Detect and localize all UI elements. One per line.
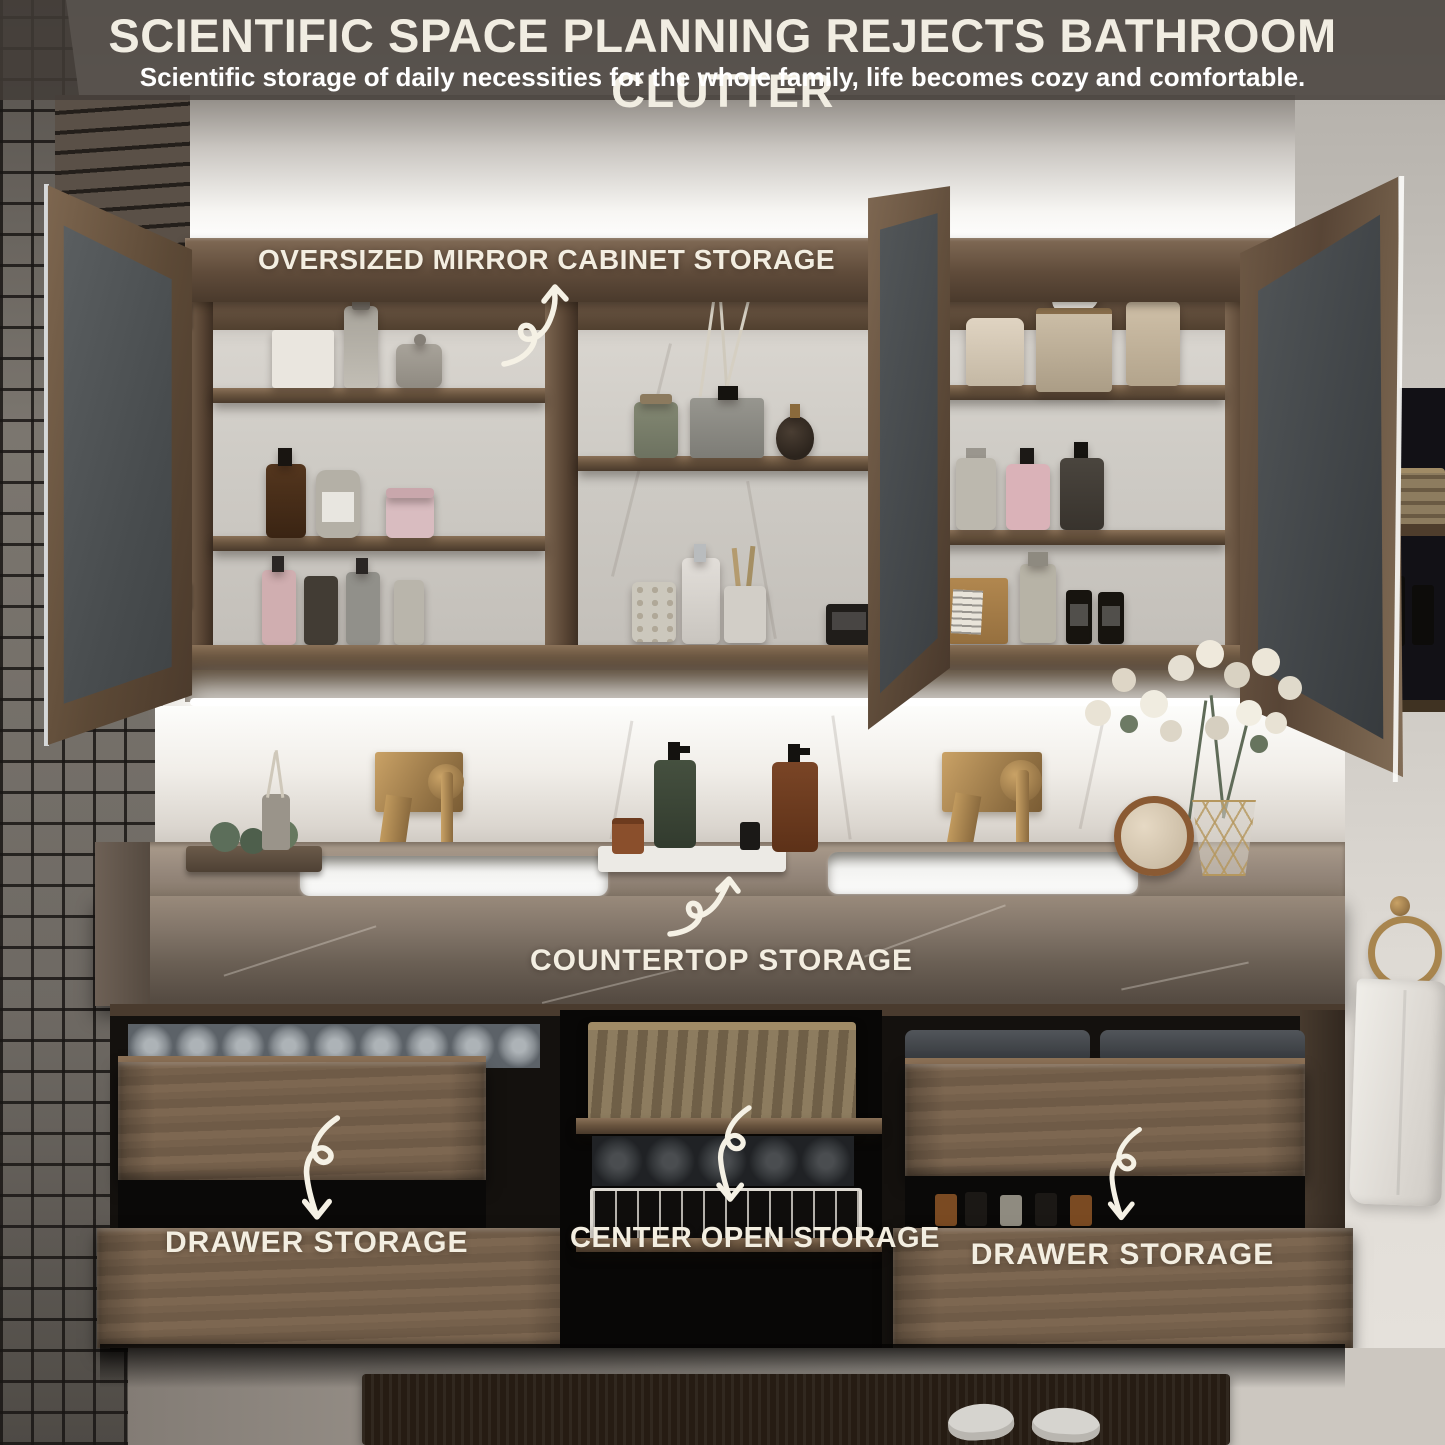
cabinet-shelf: [578, 456, 876, 471]
rose-bloom: [1196, 640, 1224, 668]
glass-jar: [396, 344, 442, 388]
tissue-box: [1036, 308, 1112, 392]
mini-bottle: [965, 1192, 987, 1226]
bath-rug: [362, 1374, 1230, 1445]
callout-label-countertop: COUNTERTOP STORAGE: [530, 944, 865, 978]
rose-bloom: [1278, 676, 1302, 700]
rose-bloom: [1160, 720, 1182, 742]
toiletry-bottle: [394, 580, 424, 645]
mini-bottle: [1035, 1193, 1057, 1226]
soap-dispenser: [1126, 302, 1180, 386]
pump-bottle: [266, 464, 306, 538]
toiletry-bottle: [344, 306, 378, 388]
curly-arrow-down-icon: [1092, 1124, 1156, 1224]
candle: [740, 822, 760, 850]
pump-bottle: [346, 572, 380, 645]
flower-leaf: [1250, 735, 1268, 753]
callout-label-drawer-left: DRAWER STORAGE: [165, 1226, 465, 1260]
header-band: SCIENTIFIC SPACE PLANNING REJECTS BATHRO…: [0, 0, 1445, 100]
diffuser-cap: [718, 386, 738, 400]
toothbrush-cup: [724, 586, 766, 643]
mirror-door-right: [1238, 175, 1405, 785]
canister: [966, 318, 1024, 386]
pump-bottle: [1060, 458, 1104, 530]
cabinet-shelf: [908, 530, 1225, 545]
soap-bottle-brown: [772, 762, 818, 852]
perfume-bottle: [776, 416, 814, 460]
rose-bloom: [1140, 690, 1168, 718]
curly-arrow-down-icon: [284, 1112, 356, 1224]
bottle-label: [1102, 606, 1120, 626]
product-infographic: SCIENTIFIC SPACE PLANNING REJECTS BATHRO…: [0, 0, 1445, 1445]
jar-lid: [640, 394, 672, 404]
soap-dispenser: [682, 558, 720, 644]
mirror-door-middle: [862, 180, 952, 732]
sink-left: [300, 856, 608, 896]
cabinet-shelf: [213, 388, 545, 403]
rose-bloom: [1112, 668, 1136, 692]
pump-spout: [798, 748, 810, 755]
perfume-neck: [790, 404, 800, 418]
jar-label: [832, 612, 866, 630]
niche-bottle: [1412, 585, 1434, 645]
dispenser-pump: [694, 544, 706, 562]
toiletry-bottle: [304, 576, 338, 645]
page-subtitle: Scientific storage of daily necessities …: [0, 62, 1445, 93]
callout-label-drawer-right: DRAWER STORAGE: [970, 1238, 1275, 1272]
pump-top: [356, 558, 368, 574]
pump-bottle: [262, 570, 296, 645]
rose-bloom: [1252, 648, 1280, 676]
soap-bottle-green: [654, 760, 696, 848]
bottle-label: [322, 492, 354, 522]
sink-right: [828, 852, 1138, 894]
flower-leaf: [1120, 715, 1138, 733]
towel-ring-mount: [1390, 896, 1410, 916]
jar-lid: [386, 488, 434, 498]
mini-bottle: [1070, 1195, 1092, 1226]
rose-bloom: [1265, 712, 1287, 734]
jar-knob: [414, 334, 426, 346]
callout-label-mirror-cabinet: OVERSIZED MIRROR CABINET STORAGE: [258, 244, 818, 276]
mini-bottle: [1000, 1195, 1022, 1226]
pebble-jar: [632, 582, 676, 642]
bottle-label: [1070, 604, 1088, 626]
rose-bloom: [1224, 662, 1250, 688]
spray-cap: [1028, 552, 1048, 566]
cabinet-bottom-ledge: [185, 645, 1310, 671]
toiletry-bottle: [956, 458, 996, 530]
faucet-left-handle: [441, 772, 453, 846]
rose-bloom: [1168, 655, 1194, 681]
amber-jar: [612, 818, 644, 854]
pump-top: [272, 556, 284, 572]
mirror-door-left: [44, 183, 196, 749]
pump-bottle: [1006, 464, 1050, 530]
rose-bloom: [1205, 716, 1229, 740]
hand-mirror: [1114, 796, 1194, 876]
rose-bloom: [1236, 700, 1262, 726]
faucet-right-handle: [1016, 770, 1029, 848]
countertop-side: [95, 842, 150, 1006]
diffuser-bottle: [262, 794, 290, 850]
cabinet-shelf: [213, 536, 545, 551]
box-label: [951, 589, 983, 635]
spray-bottle: [1020, 564, 1056, 643]
curly-arrow-down-icon: [700, 1102, 766, 1206]
storage-box: [272, 330, 334, 388]
pump-spout: [678, 746, 690, 753]
curly-arrow-up-icon: [498, 280, 578, 370]
glass-jar: [634, 402, 678, 458]
callout-label-center-open: CENTER OPEN STORAGE: [570, 1222, 905, 1255]
cosmetic-jar: [386, 494, 434, 538]
reed-diffuser: [690, 398, 764, 458]
eucalyptus-greenery: [210, 822, 240, 852]
rose-bloom: [1085, 700, 1111, 726]
pump-top: [278, 448, 292, 466]
curly-arrow-up-icon: [664, 874, 746, 942]
